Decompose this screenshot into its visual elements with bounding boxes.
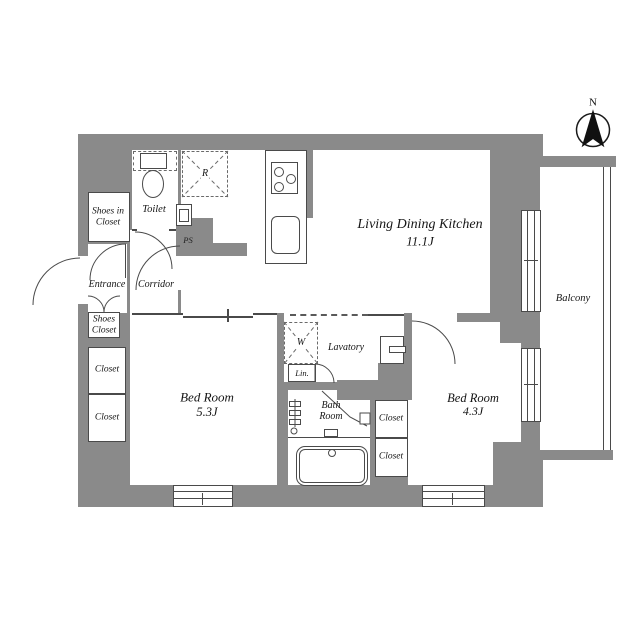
stove-burner-2	[275, 183, 284, 192]
corridor-label: Corridor	[138, 280, 174, 290]
ps-label: PS	[183, 236, 192, 245]
bedroom2-door-arc	[412, 321, 455, 364]
bedroom1-name: Bed Room	[180, 391, 234, 404]
bathroom-line2: Room	[319, 412, 342, 422]
bathroom-line1: Bath	[322, 401, 341, 411]
lavatory-label: Lavatory	[328, 343, 364, 353]
entrance-label: Entrance	[89, 280, 126, 290]
washer-label: W	[296, 338, 306, 348]
shoes-closet-door-arc-right	[104, 296, 120, 312]
shoes-in-closet-door-arc	[90, 244, 126, 280]
ldk-size: 11.1J	[406, 235, 434, 248]
floor-plan: N Living Dining Kitchen 11.1J Bed Room 5…	[0, 0, 640, 640]
toilet-label: Toilet	[142, 205, 166, 216]
linen-label: Lin.	[295, 369, 308, 378]
shower-drain	[291, 428, 297, 434]
balcony-label: Balcony	[556, 294, 590, 305]
lavatory-door-arc	[315, 364, 334, 383]
shoes-closet-line1: Shoes	[93, 315, 115, 325]
entrance-door-arc	[33, 258, 80, 305]
closet-left-1-label: Closet	[95, 365, 119, 375]
bedroom1-size: 5.3J	[196, 406, 217, 419]
shoes-closet-door-arc-left	[88, 296, 104, 312]
refrigerator-label: R	[201, 169, 209, 179]
bedroom2-size: 4.3J	[463, 405, 483, 417]
bedroom2-name: Bed Room	[447, 392, 499, 405]
stove-burner-1	[275, 168, 284, 177]
ldk-name: Living Dining Kitchen	[357, 218, 482, 232]
stove-burner-3	[287, 175, 296, 184]
shoes-in-closet-line1: Shoes in	[92, 207, 124, 217]
toilet-door-arc	[135, 232, 172, 269]
bathtub-drain	[329, 450, 336, 457]
closet-right-2-label: Closet	[379, 452, 403, 462]
closet-right-1-label: Closet	[379, 414, 403, 424]
toilet-bowl	[143, 171, 164, 198]
bathroom-door-handle	[360, 413, 370, 424]
shoes-in-closet-line2: Closet	[96, 218, 120, 228]
compass-label: N	[589, 98, 597, 109]
closet-left-2-label: Closet	[95, 413, 119, 423]
shoes-closet-line2: Closet	[92, 326, 116, 336]
